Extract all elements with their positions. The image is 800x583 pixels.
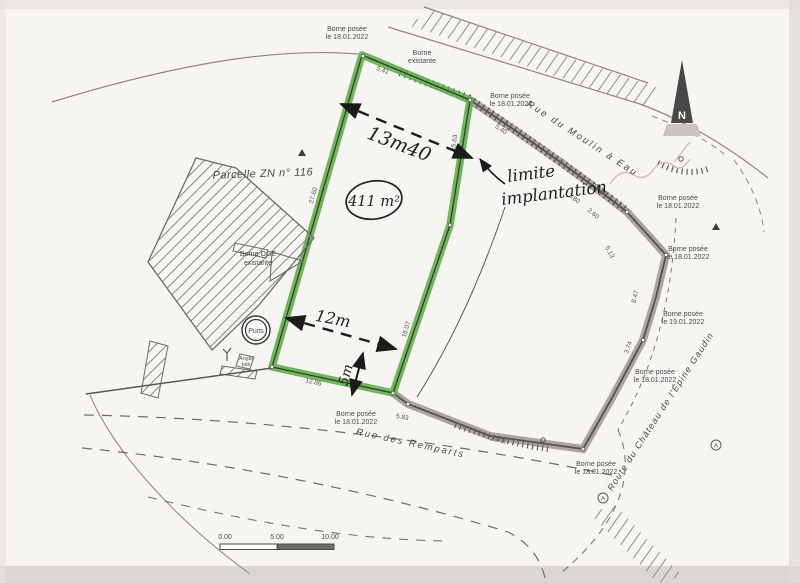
borne-text: Borne posée — [576, 461, 616, 468]
borne-text: le 18.01.2022 — [634, 377, 677, 384]
marker-a-letter: A — [714, 443, 719, 450]
borne-text: le 18.01.2022 — [335, 419, 378, 426]
scale-bar-dark-half — [277, 544, 334, 550]
north-letter: N — [678, 110, 686, 122]
borne-text: le 19.01.2022 — [662, 319, 705, 326]
borne-text: Borne OGE — [240, 251, 277, 258]
borne-label-east-2: Borne posée le 18.01.2022 — [667, 246, 710, 261]
scale-tick-5: 5.00 — [270, 534, 284, 541]
borne-text: le 18.01.2022 — [657, 203, 700, 210]
borne-text: Borne posée — [658, 195, 698, 202]
borne-label-east-4: Borne posée le 18.01.2022 — [634, 369, 677, 384]
borne-label-bottom: Borne posée le 18.01.2022 — [335, 411, 378, 426]
borne-label-east-3: Borne posée le 19.01.2022 — [662, 311, 705, 326]
borne-text: Borne — [413, 50, 432, 57]
paper-edge-right — [789, 0, 800, 583]
borne-text: Borne posée — [635, 369, 675, 376]
borne-label-bottom-right: Borne posée le 18.01.2022 — [575, 461, 618, 476]
borne-text: le 18.01.2022 — [326, 34, 369, 41]
scanned-survey-plan: 13m40 411 m² limite implantation 12m 5m … — [0, 0, 800, 583]
borne-label-top-left: Borne posée le 18.01.2022 — [326, 26, 369, 41]
borne-text: Borne posée — [327, 26, 367, 33]
plan-canvas: 13m40 411 m² limite implantation 12m 5m … — [0, 0, 800, 583]
scale-tick-0: 0.00 — [218, 534, 232, 541]
paper-edge-top — [0, 0, 800, 9]
borne-text: Borne posée — [490, 93, 530, 100]
borne-text: existante — [408, 58, 436, 65]
scale-tick-10: 10.00 — [321, 534, 339, 541]
paper-edge-left — [0, 0, 6, 583]
borne-text: Borne posée — [336, 411, 376, 418]
borne-text: Borne posée — [663, 311, 703, 318]
well-label: Puits — [248, 328, 264, 335]
angle-label-line2: bâti — [242, 362, 251, 368]
marker-a-letter: A — [601, 496, 606, 503]
borne-label-east-1: Borne posée le 18.01.2022 — [657, 195, 700, 210]
borne-text: Borne posée — [668, 246, 708, 253]
borne-text: le 18.01.2022 — [575, 469, 618, 476]
north-arrow-base — [663, 124, 701, 136]
handwritten-area: 411 m² — [347, 194, 400, 210]
borne-text: le 18.01.2022 — [667, 254, 710, 261]
borne-text: existante — [244, 260, 272, 267]
